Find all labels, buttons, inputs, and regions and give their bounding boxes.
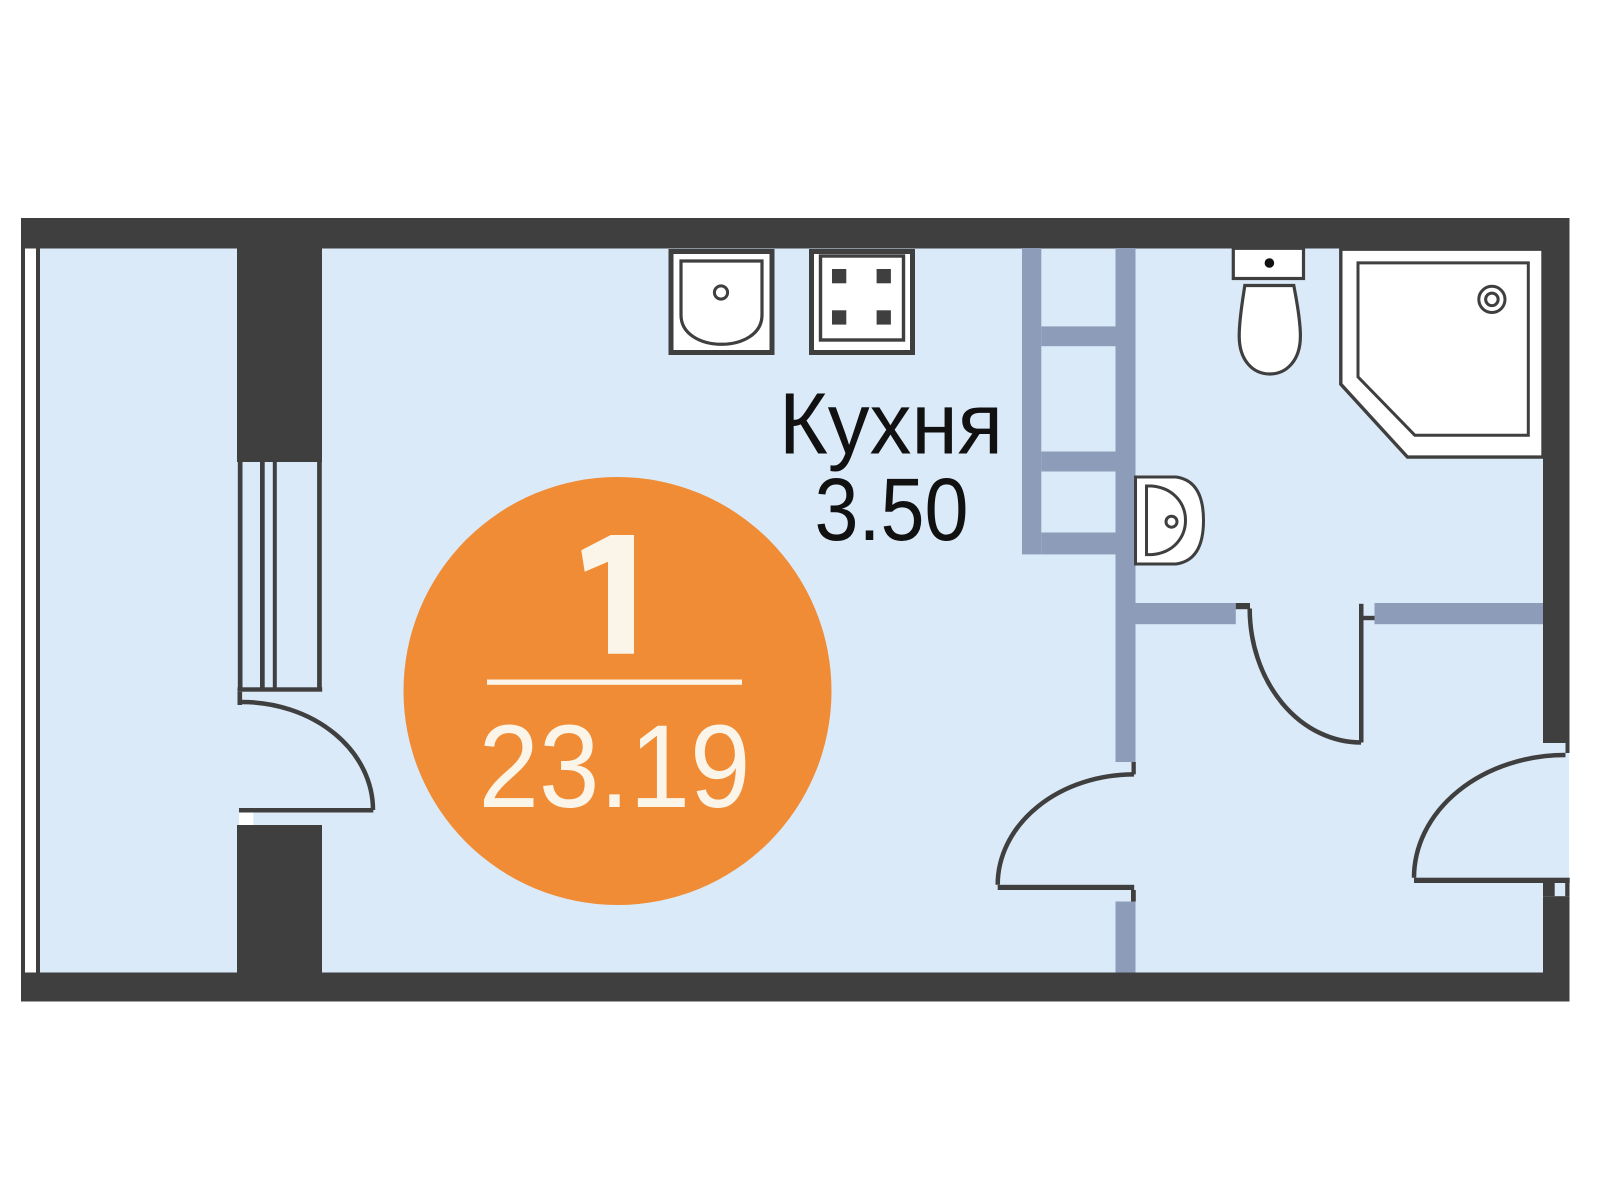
svg-text:Кухня: Кухня <box>779 376 1003 473</box>
svg-text:3.50: 3.50 <box>815 459 969 559</box>
svg-text:23.19: 23.19 <box>479 701 751 833</box>
